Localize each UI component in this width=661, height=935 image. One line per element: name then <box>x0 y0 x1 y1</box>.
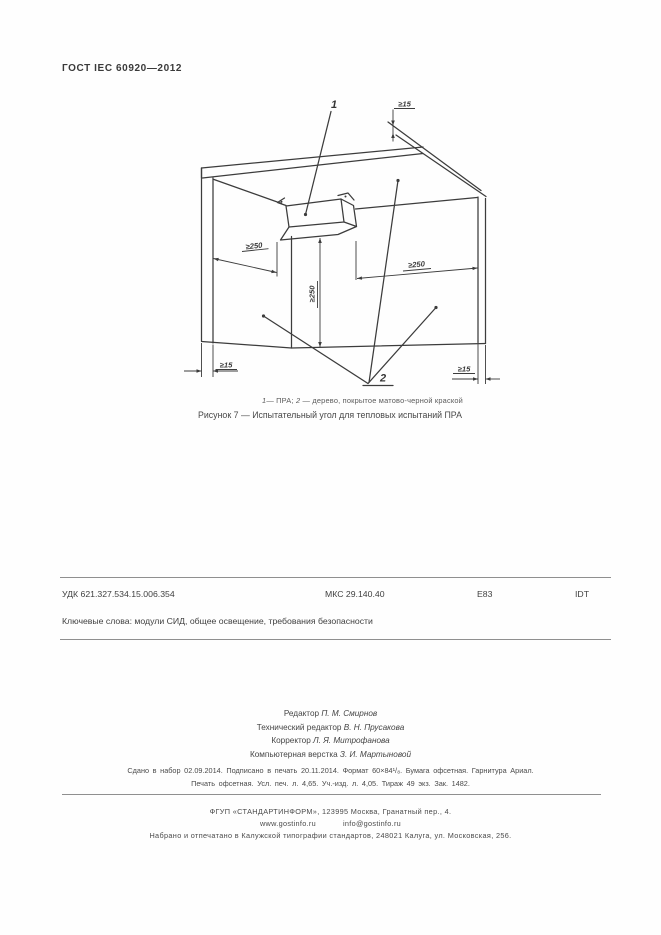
credit-editor: Редактор П. М. Смирнов <box>0 709 661 718</box>
dim-label: ≥15 <box>398 100 411 109</box>
dim-label: ≥250 <box>408 259 426 270</box>
page-title: ГОСТ IEC 60920—2012 <box>62 63 182 74</box>
colophon-line-1: Сдано в набор 02.09.2014. Подписано в пе… <box>0 766 661 775</box>
divider-colophon <box>62 794 601 795</box>
credit-role: Технический редактор <box>257 723 344 732</box>
callout-2: 2 <box>262 179 438 386</box>
publisher-address: ФГУП «СТАНДАРТИНФОРМ», 123995 Москва, Гр… <box>0 807 661 816</box>
dim-right-250: ≥250 <box>356 241 478 280</box>
wall-lines <box>202 168 486 348</box>
dim-label: ≥15 <box>220 361 233 370</box>
printer-address: Набрано и отпечатано в Калужской типогра… <box>0 831 661 840</box>
dim-bottom-right-15: ≥15 <box>452 344 500 384</box>
callout-2-label: 2 <box>379 373 386 385</box>
figure-7-drawing: ≥15 ≥250 ≥250 <box>150 85 500 400</box>
ceiling-slab-lines <box>202 122 487 197</box>
divider-bottom <box>60 639 611 640</box>
dim-vertical-250: ≥250 <box>308 238 322 347</box>
ballast-box <box>278 193 357 240</box>
idt-code: IDT <box>575 589 589 599</box>
dim-bottom-left-15: ≥15 <box>184 343 238 377</box>
document-page: ГОСТ IEC 60920—2012 <box>0 0 661 935</box>
mks-code: МКС 29.140.40 <box>325 589 385 599</box>
dim-ceiling-15: ≥15 <box>391 100 415 142</box>
credit-name: В. Н. Прусакова <box>344 723 405 732</box>
figure-title: Рисунок 7 — Испытательный угол для тепло… <box>198 410 462 420</box>
credit-name: Л. Я. Митрофанова <box>313 736 390 745</box>
credit-corrector: Корректор Л. Я. Митрофанова <box>0 736 661 745</box>
legend-text-1: — ПРА; <box>266 396 296 405</box>
publisher-website: www.gostinfo.ru <box>260 819 316 828</box>
credit-role: Корректор <box>271 736 313 745</box>
dim-left-250: ≥250 <box>214 241 278 277</box>
credit-role: Компьютерная верстка <box>250 750 340 759</box>
credit-tech-editor: Технический редактор В. Н. Прусакова <box>0 723 661 732</box>
dim-label: ≥15 <box>458 365 471 374</box>
colophon-line-2: Печать офсетная. Усл. печ. л. 4,65. Уч.-… <box>0 779 661 788</box>
test-corner-diagram: ≥15 ≥250 ≥250 <box>150 85 500 400</box>
publisher-email: info@gostinfo.ru <box>343 819 401 828</box>
figure-legend: 1— ПРА; 2 — дерево, покрытое матово-черн… <box>262 396 463 405</box>
e-code: Е83 <box>477 589 492 599</box>
publisher-contacts: www.gostinfo.ru info@gostinfo.ru <box>0 819 661 828</box>
credit-name: П. М. Смирнов <box>321 709 377 718</box>
callout-1-label: 1 <box>331 99 337 111</box>
credit-name: З. И. Мартыновой <box>340 750 411 759</box>
divider-top <box>60 577 611 578</box>
dim-label: ≥250 <box>308 285 317 303</box>
legend-text-2: — дерево, покрытое матово-черной краской <box>300 396 463 405</box>
credit-layout: Компьютерная верстка З. И. Мартыновой <box>0 750 661 759</box>
credit-role: Редактор <box>284 709 322 718</box>
udk-code: УДК 621.327.534.15.006.354 <box>62 589 175 599</box>
keywords-line: Ключевые слова: модули СИД, общее освеще… <box>62 616 373 626</box>
